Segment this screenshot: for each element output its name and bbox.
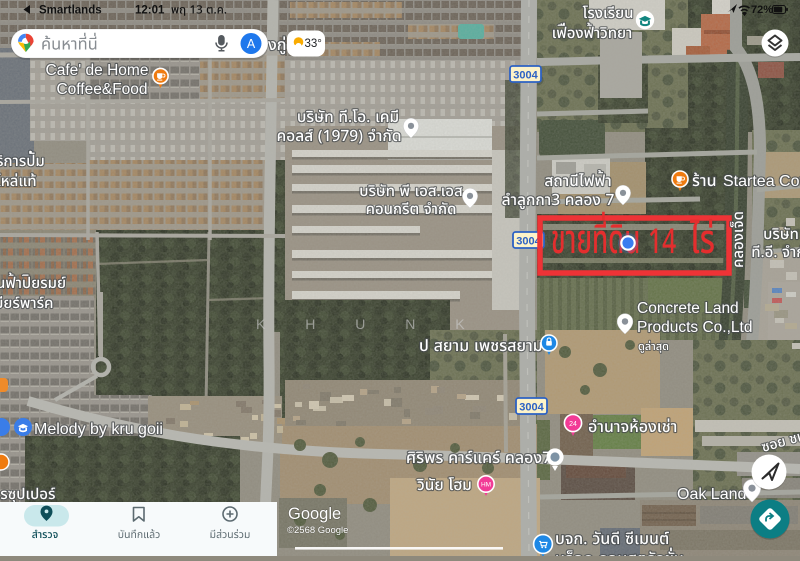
svg-text:Products Co.,Ltd: Products Co.,Ltd bbox=[637, 319, 752, 336]
svg-text:Google: Google bbox=[288, 505, 341, 523]
svg-text:HM: HM bbox=[481, 482, 491, 489]
svg-text:72%: 72% bbox=[751, 4, 773, 16]
svg-text:Coffee&Food: Coffee&Food bbox=[56, 81, 147, 98]
svg-text:A: A bbox=[247, 37, 256, 51]
svg-text:3004: 3004 bbox=[513, 70, 538, 82]
svg-text:Smartlands: Smartlands bbox=[39, 5, 102, 17]
svg-text:Startea Coff: Startea Coff bbox=[723, 173, 800, 190]
svg-text:Melody by kru goii: Melody by kru goii bbox=[34, 421, 163, 438]
svg-text:K H U N K: K H U N K bbox=[256, 316, 483, 332]
svg-text:12:01: 12:01 bbox=[135, 5, 165, 17]
svg-text:Cafe' de Home: Cafe' de Home bbox=[46, 62, 149, 79]
svg-text:Concrete Land: Concrete Land bbox=[637, 300, 739, 317]
svg-text:Oak Land: Oak Land bbox=[677, 486, 746, 503]
svg-text:©2568 Google: ©2568 Google bbox=[287, 525, 348, 536]
svg-text:24: 24 bbox=[569, 421, 577, 428]
svg-text:33°: 33° bbox=[305, 38, 322, 50]
svg-text:3004: 3004 bbox=[519, 402, 544, 414]
